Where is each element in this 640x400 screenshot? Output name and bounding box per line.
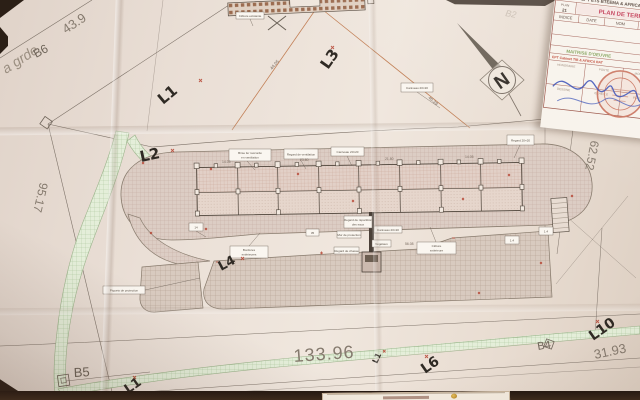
plan-note: Végétaux <box>372 240 391 247</box>
label-l10: L10 <box>586 315 619 345</box>
dim-62-52: 62.52 <box>582 139 602 171</box>
construction-triangle-lines <box>232 6 470 130</box>
plan-note: 14 <box>189 223 203 231</box>
underlying-document-sliver <box>322 391 510 400</box>
svg-text:PORTE: PORTE <box>599 67 610 72</box>
plan-note: 1.4 <box>505 236 519 244</box>
plan-note: 1.4 <box>539 227 553 235</box>
dim-95-17: 95.17 <box>30 181 50 214</box>
svg-text:extérieure: extérieure <box>430 249 444 253</box>
plan-note: Caniveau 20×20 <box>331 147 364 156</box>
svg-text:35: 35 <box>311 231 315 235</box>
cross-mark <box>268 16 286 30</box>
svg-text:Bordures: Bordures <box>243 248 256 252</box>
plan-note: Brise fer raccordéen ventilation <box>229 149 271 161</box>
svg-text:Mur de protection: Mur de protection <box>337 233 361 237</box>
svg-text:Brise fer raccordé: Brise fer raccordé <box>238 151 262 155</box>
label-b4: B4 <box>536 339 551 353</box>
svg-text:14: 14 <box>194 225 198 229</box>
svg-text:21.80: 21.80 <box>385 157 394 161</box>
plan-note: Piquets de protection <box>103 286 145 294</box>
plan-note: Caniveau 20×20 <box>401 83 433 92</box>
pencil-b2: B2 <box>505 8 518 20</box>
plan-note: Caniveau 20×20 <box>374 226 402 233</box>
document-text-smudge <box>383 396 429 399</box>
embankment-band <box>140 231 552 312</box>
label-l3: L3 <box>317 46 343 73</box>
table-surface-bottom <box>0 391 640 400</box>
plan-note: Clôtureextérieure <box>417 242 456 254</box>
svg-text:en ventilation: en ventilation <box>241 156 259 160</box>
photo-of-site-plan: N Clôture existante Caniveau 20×20 Regar… <box>0 0 640 400</box>
svg-text:Végétaux: Végétaux <box>375 242 388 246</box>
site-plan-drawing: N Clôture existante Caniveau 20×20 Regar… <box>0 0 640 400</box>
title-block-sheet: EPT ETS BTEEMA & AFRICA COM'S PLAN 21 PL… <box>540 0 640 141</box>
svg-text:Regard de répartition: Regard de répartition <box>344 218 373 222</box>
gold-seal-icon <box>451 394 457 399</box>
plan-note: Clôture existante <box>236 12 264 19</box>
stairs-detail <box>551 197 569 232</box>
svg-text:Caniveau 20×20: Caniveau 20×20 <box>406 86 428 90</box>
building-strip <box>194 158 525 216</box>
approval-stamp <box>595 69 640 120</box>
label-l6: L6 <box>418 353 442 377</box>
col-date: DATE <box>586 17 597 23</box>
north-arrow: N <box>457 23 524 116</box>
svg-text:extérieures: extérieures <box>242 253 257 257</box>
svg-text:56.08: 56.08 <box>405 242 414 246</box>
svg-text:1.4: 1.4 <box>510 238 515 242</box>
svg-text:Piquets de protection: Piquets de protection <box>110 288 139 292</box>
col-indice: INDICE <box>559 14 573 21</box>
svg-text:23.80: 23.80 <box>300 158 309 162</box>
plan-note: Regard 20×20 <box>507 135 534 145</box>
svg-text:Caniveau 20×20: Caniveau 20×20 <box>337 150 359 154</box>
svg-text:HONORAIRE: HONORAIRE <box>557 63 576 69</box>
doc-number: 21 <box>562 7 568 13</box>
plan-note: Borduresextérieures <box>230 246 268 258</box>
svg-text:46.39: 46.39 <box>427 95 439 107</box>
plan-note: Regard de chasse <box>334 247 359 254</box>
svg-text:Regard de ventilation: Regard de ventilation <box>287 152 316 156</box>
plan-note: Regard de répartitiondes eaux <box>344 216 373 228</box>
svg-text:1.4: 1.4 <box>544 229 549 233</box>
svg-text:14.05: 14.05 <box>465 155 474 159</box>
col-nom: NOM <box>615 21 625 27</box>
label-b5: B5 <box>73 364 90 380</box>
svg-text:Caniveau 20×20: Caniveau 20×20 <box>377 228 399 232</box>
svg-text:Regard 20×20: Regard 20×20 <box>511 139 530 143</box>
svg-text:des eaux: des eaux <box>352 223 365 227</box>
dim-133-96: 133.96 <box>293 342 355 366</box>
svg-text:Regard de chasse: Regard de chasse <box>334 249 359 253</box>
svg-text:Clôture existante: Clôture existante <box>239 14 262 18</box>
document-edge-line <box>327 392 505 395</box>
plan-note: 35 <box>306 229 319 236</box>
plan-note: Mur de protection <box>337 231 361 238</box>
svg-text:Clôture: Clôture <box>432 244 442 248</box>
svg-text:DESSINE: DESSINE <box>557 87 571 92</box>
label-l1-top: L1 <box>154 81 181 108</box>
dim-31-93: 31.93 <box>593 340 628 361</box>
svg-text:14.05: 14.05 <box>222 160 231 164</box>
dim-43-9: 43.9 <box>59 10 88 36</box>
title-block: EPT ETS BTEEMA & AFRICA COM'S PLAN 21 PL… <box>540 0 640 141</box>
